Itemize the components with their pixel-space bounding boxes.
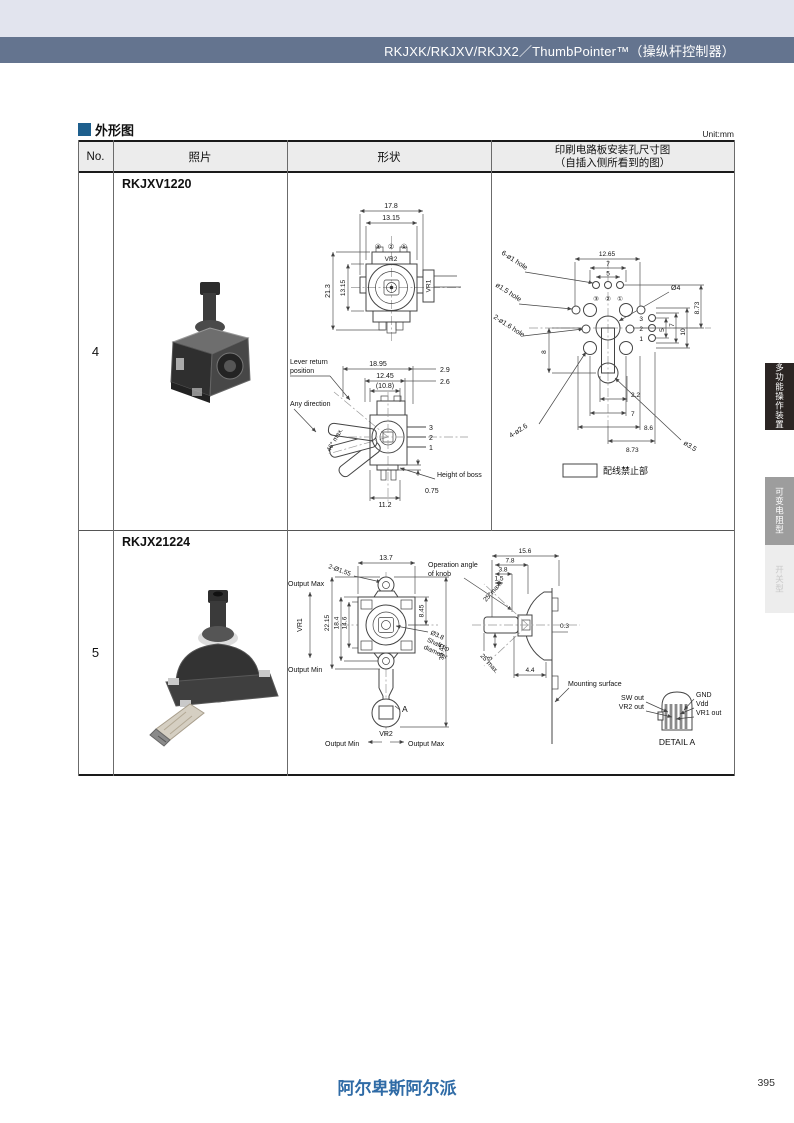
dim-label: 8	[541, 350, 548, 354]
hole-label: ø3.5	[682, 440, 698, 454]
vr2-label: VR2	[385, 256, 398, 263]
row4-number: 4	[78, 173, 113, 530]
edge-tab-multifunction: 多功能操作装置	[765, 363, 794, 430]
row5-model-name: RKJX21224	[122, 535, 190, 549]
dim-label: 7	[631, 411, 635, 418]
pin-label: 2	[429, 435, 433, 442]
dim-label: 12.45	[376, 373, 394, 380]
dim-label: 12.65	[599, 251, 616, 258]
hole-label: 6-ø1 hole	[500, 250, 529, 272]
pin-label: 1	[429, 445, 433, 452]
pin-label: 3	[639, 316, 643, 323]
dim-label: 5	[659, 328, 666, 332]
annotation: Operation angle	[428, 562, 478, 569]
dim-label: 8.73	[694, 301, 701, 314]
dim-label: 7	[669, 323, 676, 327]
annotation: Output Min	[325, 741, 359, 748]
page-number: 395	[757, 1077, 775, 1089]
detail-a-marker: A	[402, 704, 408, 714]
hole-label: ø1.5 hole	[494, 282, 522, 304]
page-title: RKJXK/RKJXV/RKJX2／ThumbPointer™（操纵杆控制器）	[384, 41, 735, 60]
col-header-no: No.	[78, 142, 113, 171]
dim-label: 0.75	[425, 488, 439, 495]
vr1-label: VR1	[297, 618, 304, 632]
annotation: Height of boss	[437, 472, 482, 479]
row4-pcb-hole-diagram: 6-ø1 hole ø1.5 hole 2-ø1.6 hole Ø4 4-ø2.…	[493, 226, 731, 486]
angle-label: 25°max.	[479, 652, 501, 675]
table-header-separator	[78, 171, 735, 173]
dim-label: (10.8)	[376, 383, 394, 390]
dim-label: 7	[606, 261, 610, 268]
row5-number: 5	[78, 531, 113, 774]
dim-label: 13.15	[340, 279, 347, 296]
detail-pin-label: GND	[696, 692, 712, 699]
dim-label: 21.3	[325, 284, 332, 298]
vr1-label: VR1	[426, 279, 433, 292]
col-header-pcb-line1: 印刷电路板安装孔尺寸图	[555, 144, 671, 157]
pin-label: 1	[639, 336, 643, 343]
dim-label: 14.6	[342, 616, 349, 629]
pin-label: 2	[639, 326, 643, 333]
col-header-pcb: 印刷电路板安装孔尺寸图 （自插入侧所看到的图）	[491, 142, 734, 171]
dim-label: 22.15	[324, 614, 331, 631]
dim-label: 7.8	[505, 558, 514, 565]
hole-label: 2-Ø1.55	[327, 563, 352, 578]
annotation: Output Max	[408, 741, 445, 748]
dim-label: 13.7	[379, 555, 393, 562]
row5-product-photo	[138, 586, 280, 751]
terminal-circled-2: ②	[605, 296, 611, 303]
annotation: Lever return	[290, 359, 328, 366]
annotation: of knob	[428, 571, 451, 578]
detail-a-caption: DETAIL A	[659, 737, 696, 747]
dim-label: 2.6	[440, 379, 450, 386]
table-vline	[113, 140, 114, 776]
annotation: Any direction	[290, 401, 331, 408]
annotation: position	[290, 368, 314, 375]
row4-product-photo	[140, 280, 275, 405]
datasheet-page: RKJXK/RKJXV/RKJX2／ThumbPointer™（操纵杆控制器） …	[0, 0, 794, 1123]
dim-label: 2.2	[631, 392, 640, 399]
dim-label: 8.6	[644, 425, 653, 432]
col-header-photo: 照片	[113, 142, 287, 171]
col-header-pcb-line2: （自插入侧所看到的图）	[555, 157, 671, 170]
row4-front-view-drawing: 17.8 13.15 21.3 13.15 ③ ② ① VR2 VR1	[293, 192, 481, 352]
detail-pin-label: VR1 out	[696, 710, 721, 717]
annotation: Output Max	[288, 581, 325, 588]
edge-tab-switch-type: 开关型	[765, 545, 794, 613]
dim-label: 1.5	[494, 576, 503, 583]
dim-label: 0.3	[560, 623, 569, 630]
vr2-label: VR2	[379, 731, 393, 738]
dim-label: 8.73	[626, 447, 639, 454]
dim-label: 4.4	[525, 667, 534, 674]
dim-label: 8.45	[419, 604, 426, 617]
hole-label: 2-ø1.6 hole	[493, 314, 526, 339]
dim-label: 2.9	[440, 367, 450, 374]
table-row-separator	[78, 530, 735, 531]
dim-label: 18.4	[334, 616, 341, 629]
col-header-shape: 形状	[287, 142, 491, 171]
table-vline	[734, 140, 735, 776]
dim-label: 17.8	[384, 203, 398, 210]
hole-label: 4-ø2.6	[508, 423, 529, 440]
terminal-circled-3: ③	[593, 296, 599, 303]
unit-label: Unit:mm	[78, 129, 734, 139]
wiring-prohibited-legend: 配线禁止部	[603, 465, 648, 476]
row4-side-view-drawing: Lever return position Any direction 18.9…	[288, 352, 508, 510]
dim-label: 18.95	[369, 361, 387, 368]
annotation: Output Min	[288, 667, 322, 674]
dim-label: 11.2	[378, 502, 391, 509]
alps-alpine-logo: 阿尔卑斯阿尔派	[0, 1074, 794, 1099]
edge-tab-variable-resistor: 可变电阻型	[765, 477, 794, 545]
detail-pin-label: VR2 out	[619, 704, 644, 711]
row5-outline-drawing: 2-Ø1.55 13.7 Output Max Output Min VR1 2…	[288, 536, 734, 774]
top-band	[0, 0, 794, 37]
hole-label: Ø4	[671, 285, 680, 292]
dim-label: 5	[606, 271, 610, 278]
annotation: Mounting surface	[568, 681, 622, 688]
dim-label: 15.6	[519, 548, 532, 555]
table-border-bottom	[78, 774, 735, 776]
detail-pin-label: SW out	[621, 695, 644, 702]
dim-label: 3.8	[498, 567, 507, 574]
dim-label: 3	[487, 656, 494, 660]
terminal-circled-1: ①	[617, 296, 623, 303]
dim-label: 10	[680, 328, 687, 336]
outline-table: No. 照片 形状 印刷电路板安装孔尺寸图 （自插入侧所看到的图） 4 5 RK…	[78, 140, 735, 776]
detail-pin-label: Vdd	[696, 701, 709, 708]
row4-model-name: RKJXV1220	[122, 177, 192, 191]
terminal-circled-2: ②	[388, 244, 394, 251]
pin-label: 3	[429, 425, 433, 432]
page-header-bar: RKJXK/RKJXV/RKJX2／ThumbPointer™（操纵杆控制器）	[0, 37, 794, 63]
dim-label: 13.15	[382, 215, 400, 222]
